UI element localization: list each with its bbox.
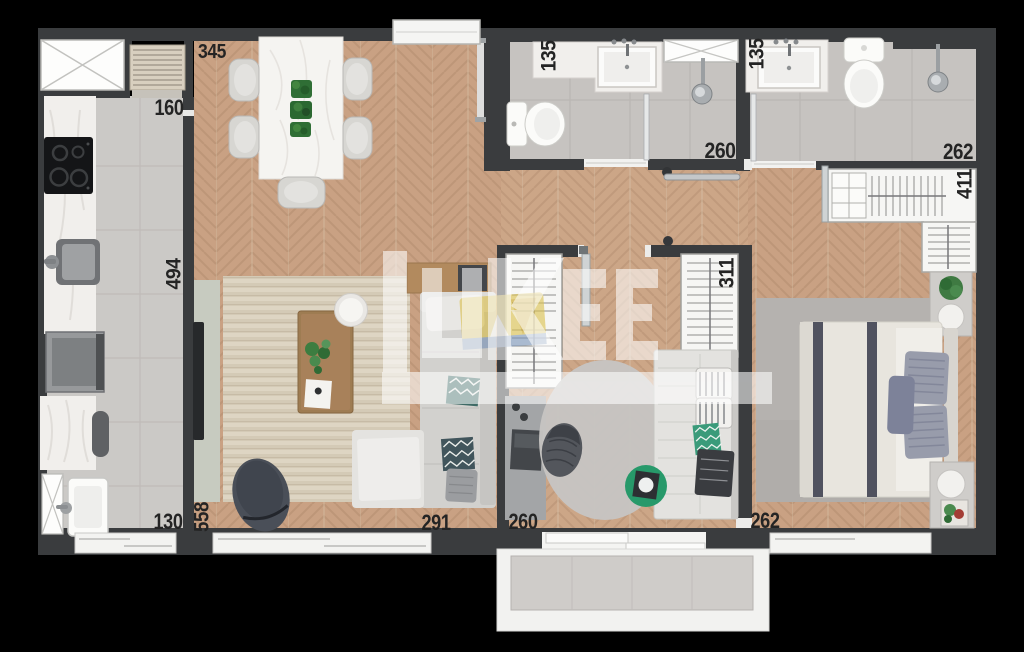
svg-text:558: 558 — [191, 501, 214, 532]
svg-text:260: 260 — [705, 138, 736, 163]
svg-text:262: 262 — [943, 139, 973, 164]
svg-text:345: 345 — [198, 41, 226, 63]
svg-text:135: 135 — [746, 38, 769, 70]
svg-text:135: 135 — [538, 40, 561, 72]
svg-text:130: 130 — [154, 509, 183, 534]
svg-text:160: 160 — [155, 95, 184, 120]
svg-text:411: 411 — [954, 168, 977, 199]
svg-text:291: 291 — [422, 510, 451, 535]
svg-text:262: 262 — [751, 508, 780, 533]
svg-text:260: 260 — [509, 509, 538, 534]
svg-text:311: 311 — [716, 257, 739, 288]
svg-text:494: 494 — [163, 258, 186, 290]
